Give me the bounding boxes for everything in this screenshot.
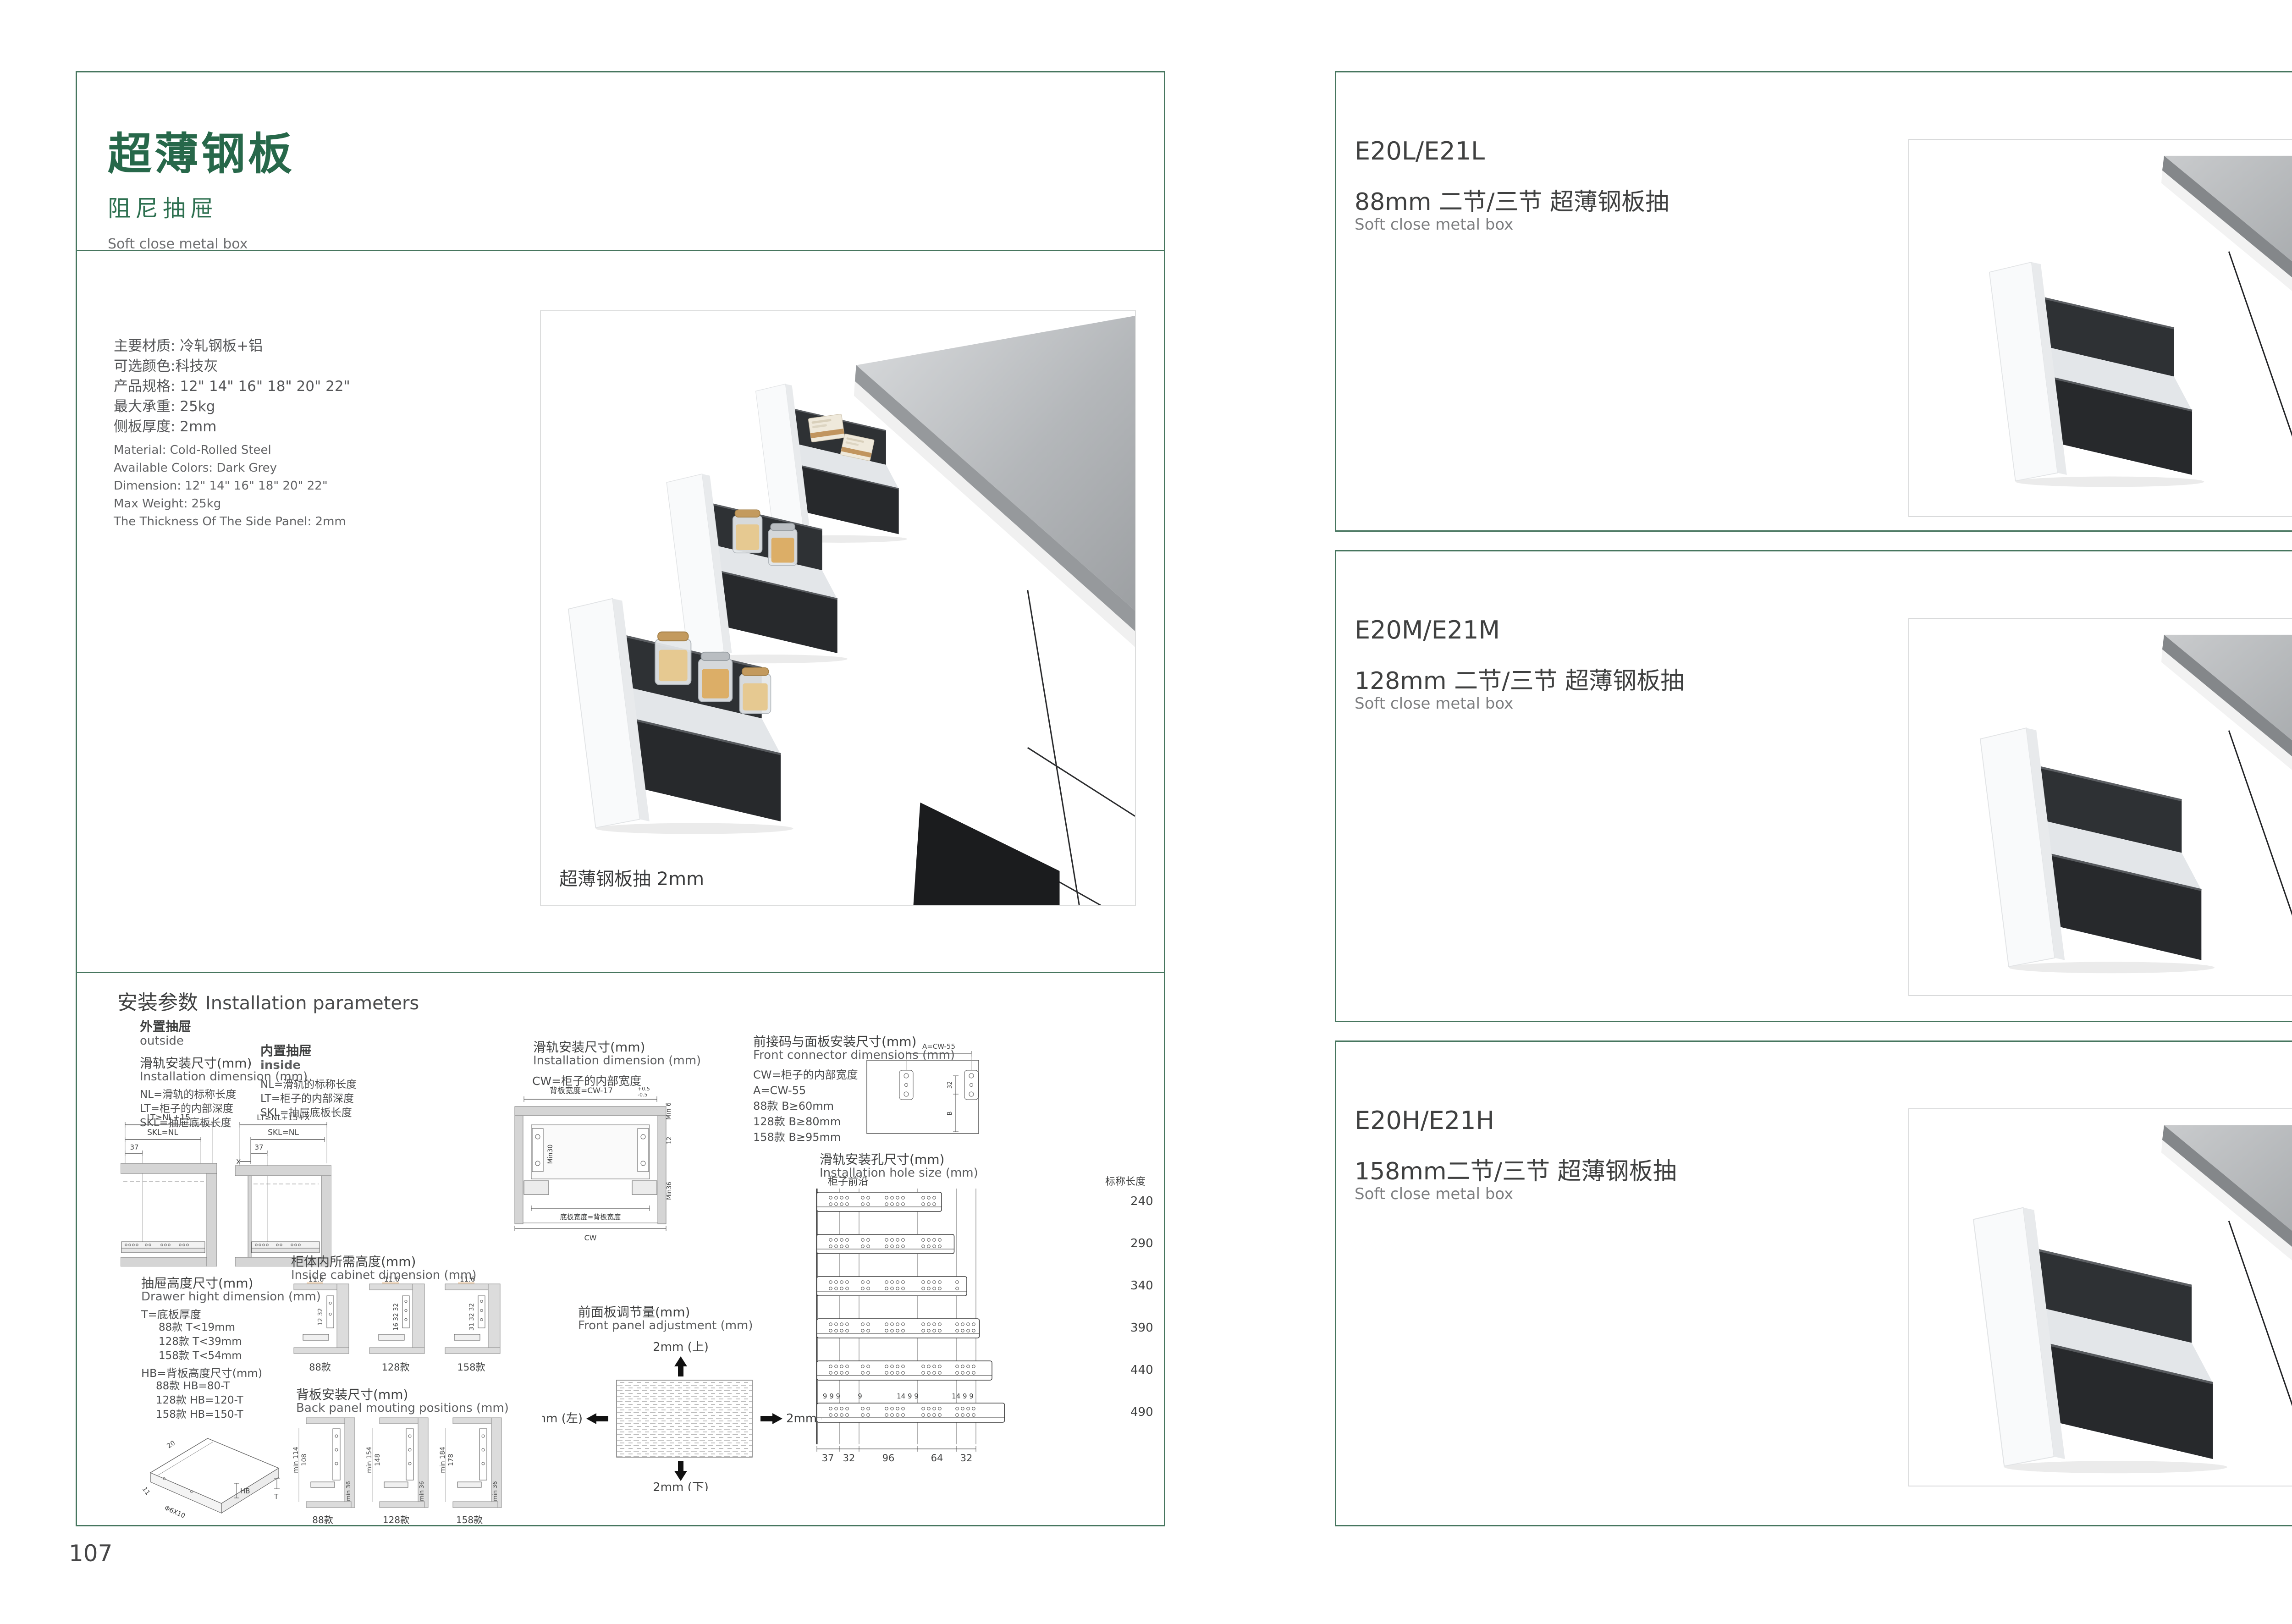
catalog-spread: 超薄钢板 阻尼抽屉 Soft close metal box 主要材质: 冷轧钢… bbox=[0, 0, 2292, 1624]
back-panel-diagrams: min 114108min 3688款min 154148min 36128款m… bbox=[293, 1414, 509, 1526]
svg-text:SKL=NL: SKL=NL bbox=[147, 1128, 178, 1137]
product-subtitle: Soft close metal box bbox=[1355, 215, 1513, 234]
svg-text:390: 390 bbox=[1130, 1321, 1153, 1335]
svg-text:128款: 128款 bbox=[381, 1362, 409, 1373]
svg-text:88款: 88款 bbox=[309, 1362, 331, 1373]
svg-text:490: 490 bbox=[1130, 1405, 1153, 1419]
outside-label-en: outside bbox=[140, 1034, 184, 1048]
svg-text:148: 148 bbox=[374, 1454, 381, 1466]
height-title-cn: 抽屉高度尺寸(mm) bbox=[141, 1273, 253, 1292]
svg-text:37: 37 bbox=[254, 1143, 263, 1151]
height-t-label: T=底板厚度 bbox=[141, 1307, 201, 1322]
svg-text:11: 11 bbox=[141, 1486, 151, 1497]
svg-text:底板宽度=背板宽度: 底板宽度=背板宽度 bbox=[560, 1213, 621, 1221]
svg-text:标称长度: 标称长度 bbox=[1105, 1176, 1146, 1188]
page-subtitle: 阻尼抽屉 bbox=[108, 190, 295, 223]
installation-parameters-section: 安装参数Installation parameters 外置抽屉 outside… bbox=[77, 972, 1164, 1526]
svg-text:+0.5: +0.5 bbox=[638, 1086, 650, 1092]
svg-text:12 32: 12 32 bbox=[317, 1308, 324, 1326]
svg-text:2mm (左): 2mm (左) bbox=[542, 1412, 583, 1426]
svg-text:290: 290 bbox=[1130, 1237, 1153, 1250]
svg-text:11.6: 11.6 bbox=[309, 1277, 324, 1283]
product-code: E20L/E21L bbox=[1355, 137, 1485, 165]
svg-text:64: 64 bbox=[931, 1453, 943, 1464]
back-title-en: Back panel mouting positions (mm) bbox=[296, 1401, 509, 1415]
svg-text:32: 32 bbox=[843, 1453, 855, 1464]
svg-text:2mm (下): 2mm (下) bbox=[653, 1481, 709, 1491]
svg-text:96: 96 bbox=[882, 1453, 895, 1464]
inside-cabinet-diagrams: 11.612 3288款11.616 32 32128款11.631 32 32… bbox=[290, 1277, 510, 1375]
svg-text:11.6: 11.6 bbox=[384, 1277, 399, 1283]
kitchen-drawers-illustration bbox=[541, 311, 1135, 905]
outside-drawer-diagram: LT≥NL+15 SKL=NL 37 bbox=[121, 1113, 217, 1266]
svg-text:20: 20 bbox=[165, 1439, 176, 1450]
svg-text:A=CW-55: A=CW-55 bbox=[922, 1042, 955, 1051]
page-header: 超薄钢板 阻尼抽屉 Soft close metal box bbox=[108, 118, 295, 252]
spec-line-en: Dimension: 12" 14" 16" 18" 20" 22" bbox=[114, 477, 346, 495]
svg-text:9 9 9: 9 9 9 bbox=[823, 1392, 840, 1400]
product-subtitle: Soft close metal box bbox=[1355, 1185, 1513, 1203]
page-subtitle-en: Soft close metal box bbox=[108, 236, 295, 252]
product-card-e20m: E20M/E21M 128mm 二节/三节 超薄钢板抽 Soft close m… bbox=[1335, 550, 2292, 1022]
svg-text:14 9 9: 14 9 9 bbox=[952, 1392, 974, 1400]
height-hb-label: HB=背板高度尺寸(mm) bbox=[141, 1365, 262, 1381]
spec-line-en: The Thickness Of The Side Panel: 2mm bbox=[114, 513, 346, 531]
page-number-left: 107 bbox=[69, 1540, 112, 1567]
product-image bbox=[1908, 1108, 2292, 1486]
product-card-e20l: E20L/E21L 88mm 二节/三节 超薄钢板抽 Soft close me… bbox=[1335, 71, 2292, 532]
svg-text:240: 240 bbox=[1130, 1195, 1153, 1208]
outside-dim-title-cn: 滑轨安装尺寸(mm) bbox=[140, 1053, 252, 1072]
svg-text:min 36: min 36 bbox=[345, 1481, 352, 1501]
spec-line: 主要材质: 冷轧钢板+铝 bbox=[114, 336, 350, 356]
svg-text:14 9 9: 14 9 9 bbox=[897, 1392, 919, 1400]
svg-text:Φ6X10: Φ6X10 bbox=[163, 1504, 186, 1520]
svg-text:LT≥NL+15+X: LT≥NL+15+X bbox=[257, 1113, 310, 1123]
svg-text:LT≥NL+15: LT≥NL+15 bbox=[147, 1113, 190, 1123]
svg-text:31 32 32: 31 32 32 bbox=[468, 1303, 475, 1331]
spec-line: 最大承重: 25kg bbox=[114, 396, 350, 417]
specs-en: Material: Cold-Rolled Steel Available Co… bbox=[114, 441, 346, 531]
adjust-title-en: Front panel adjustment (mm) bbox=[578, 1319, 753, 1332]
connector-notes: CW=柜子的内部宽度 A=CW-55 88款 B≥60mm 128款 B≥80m… bbox=[753, 1067, 858, 1145]
svg-text:X: X bbox=[236, 1158, 241, 1166]
svg-text:2mm (上): 2mm (上) bbox=[653, 1340, 709, 1354]
drawer-88-illustration bbox=[1909, 140, 2292, 516]
svg-text:-0.5: -0.5 bbox=[638, 1092, 647, 1098]
svg-text:158款: 158款 bbox=[456, 1514, 483, 1525]
adjust-title-cn: 前面板调节量(mm) bbox=[578, 1302, 690, 1321]
spec-line: 产品规格: 12" 14" 16" 18" 20" 22" bbox=[114, 376, 350, 396]
svg-text:B: B bbox=[947, 1112, 953, 1116]
svg-text:9: 9 bbox=[858, 1392, 862, 1400]
product-card-e20h: E20H/E21H 158mm二节/三节 超薄钢板抽 Soft close me… bbox=[1335, 1040, 2292, 1526]
height-t-rows: 88款 T<19mm 128款 T<39mm 158款 T<54mm bbox=[159, 1321, 242, 1363]
svg-text:37: 37 bbox=[130, 1143, 138, 1151]
spec-line: 侧板厚度: 2mm bbox=[114, 417, 350, 437]
product-code: E20M/E21M bbox=[1355, 616, 1500, 644]
svg-text:min 36: min 36 bbox=[418, 1481, 425, 1501]
inside-drawer-diagram: LT≥NL+15+X SKL=NL 37 X bbox=[235, 1113, 331, 1266]
svg-text:440: 440 bbox=[1130, 1363, 1153, 1377]
front-connector-diagram: A=CW-55 32 B bbox=[859, 1042, 987, 1140]
svg-text:88款: 88款 bbox=[312, 1514, 333, 1525]
svg-text:178: 178 bbox=[447, 1454, 455, 1466]
back-title-cn: 背板安装尺寸(mm) bbox=[296, 1385, 408, 1403]
svg-text:T: T bbox=[274, 1492, 279, 1501]
svg-text:CW: CW bbox=[584, 1233, 597, 1242]
install-section-title: 安装参数Installation parameters bbox=[117, 986, 419, 1015]
product-image bbox=[1908, 618, 2292, 996]
product-subtitle: Soft close metal box bbox=[1355, 694, 1513, 713]
specs-cn: 主要材质: 冷轧钢板+铝 可选颜色:科技灰 产品规格: 12" 14" 16" … bbox=[114, 336, 350, 437]
svg-text:16 32 32: 16 32 32 bbox=[392, 1303, 400, 1331]
inside-label-cn: 内置抽屉 bbox=[260, 1041, 312, 1059]
drawer-bottom-iso-diagram: 20 11 Φ6X10 HB T bbox=[137, 1425, 288, 1525]
svg-text:158款: 158款 bbox=[457, 1362, 485, 1373]
front-panel-adjustment-diagram: 2mm (上) 2mm (左) 2mm (右) 2mm (下) bbox=[542, 1340, 822, 1491]
page-title: 超薄钢板 bbox=[108, 118, 295, 182]
spec-line-en: Available Colors: Dark Grey bbox=[114, 459, 346, 477]
svg-text:Min30: Min30 bbox=[547, 1145, 554, 1164]
height-hb-rows: 88款 HB=80-T 128款 HB=120-T 158款 HB=150-T bbox=[156, 1379, 243, 1422]
installation-hole-size-table: 柜子前沿标称长度2402903403904404909 9 9914 9 914… bbox=[810, 1175, 1165, 1496]
holes-title-cn: 滑轨安装孔尺寸(mm) bbox=[820, 1150, 944, 1168]
svg-text:2mm (右): 2mm (右) bbox=[786, 1412, 822, 1426]
svg-text:37: 37 bbox=[822, 1453, 834, 1464]
svg-text:min 154: min 154 bbox=[366, 1447, 373, 1473]
svg-text:柜子前沿: 柜子前沿 bbox=[828, 1176, 868, 1188]
width-dimension-diagram: 背板宽度=CW-17 +0.5 -0.5 Min 6 Min30 12 bbox=[506, 1085, 678, 1246]
product-image-main: 超薄钢板抽 2mm bbox=[540, 310, 1136, 906]
product-image-caption: 超薄钢板抽 2mm bbox=[559, 864, 704, 891]
svg-text:min 184: min 184 bbox=[439, 1447, 446, 1473]
svg-text:128款: 128款 bbox=[383, 1514, 409, 1525]
svg-text:Min36: Min36 bbox=[666, 1182, 673, 1200]
svg-text:32: 32 bbox=[947, 1081, 953, 1089]
product-title: 88mm 二节/三节 超薄钢板抽 bbox=[1355, 182, 1669, 217]
product-image bbox=[1908, 139, 2292, 517]
outside-label-cn: 外置抽屉 bbox=[140, 1017, 191, 1035]
svg-text:HB: HB bbox=[240, 1487, 250, 1495]
svg-text:12: 12 bbox=[666, 1137, 673, 1145]
svg-text:min 114: min 114 bbox=[293, 1447, 300, 1473]
svg-text:SKL=NL: SKL=NL bbox=[268, 1128, 299, 1137]
inside-label-en: inside bbox=[260, 1058, 301, 1072]
drawer-128-illustration bbox=[1909, 619, 2292, 995]
drawer-158-illustration bbox=[1909, 1109, 2292, 1486]
width-title-en: Installation dimension (mm) bbox=[533, 1054, 701, 1068]
svg-text:min 36: min 36 bbox=[491, 1481, 498, 1501]
svg-text:32: 32 bbox=[960, 1453, 973, 1464]
cabinet-title-cn: 柜体内所需高度(mm) bbox=[291, 1252, 416, 1270]
page-left: 超薄钢板 阻尼抽屉 Soft close metal box 主要材质: 冷轧钢… bbox=[76, 71, 1165, 1526]
spec-line: 可选颜色:科技灰 bbox=[114, 356, 350, 376]
spec-line-en: Material: Cold-Rolled Steel bbox=[114, 441, 346, 459]
svg-text:背板宽度=CW-17: 背板宽度=CW-17 bbox=[550, 1086, 613, 1096]
svg-text:340: 340 bbox=[1130, 1279, 1153, 1293]
svg-text:108: 108 bbox=[301, 1454, 308, 1466]
svg-text:11.6: 11.6 bbox=[460, 1277, 475, 1283]
product-title: 128mm 二节/三节 超薄钢板抽 bbox=[1355, 661, 1684, 696]
spec-line-en: Max Weight: 25kg bbox=[114, 495, 346, 513]
width-title-cn: 滑轨安装尺寸(mm) bbox=[533, 1037, 645, 1056]
product-code: E20H/E21H bbox=[1355, 1106, 1494, 1135]
product-title: 158mm二节/三节 超薄钢板抽 bbox=[1355, 1152, 1677, 1186]
